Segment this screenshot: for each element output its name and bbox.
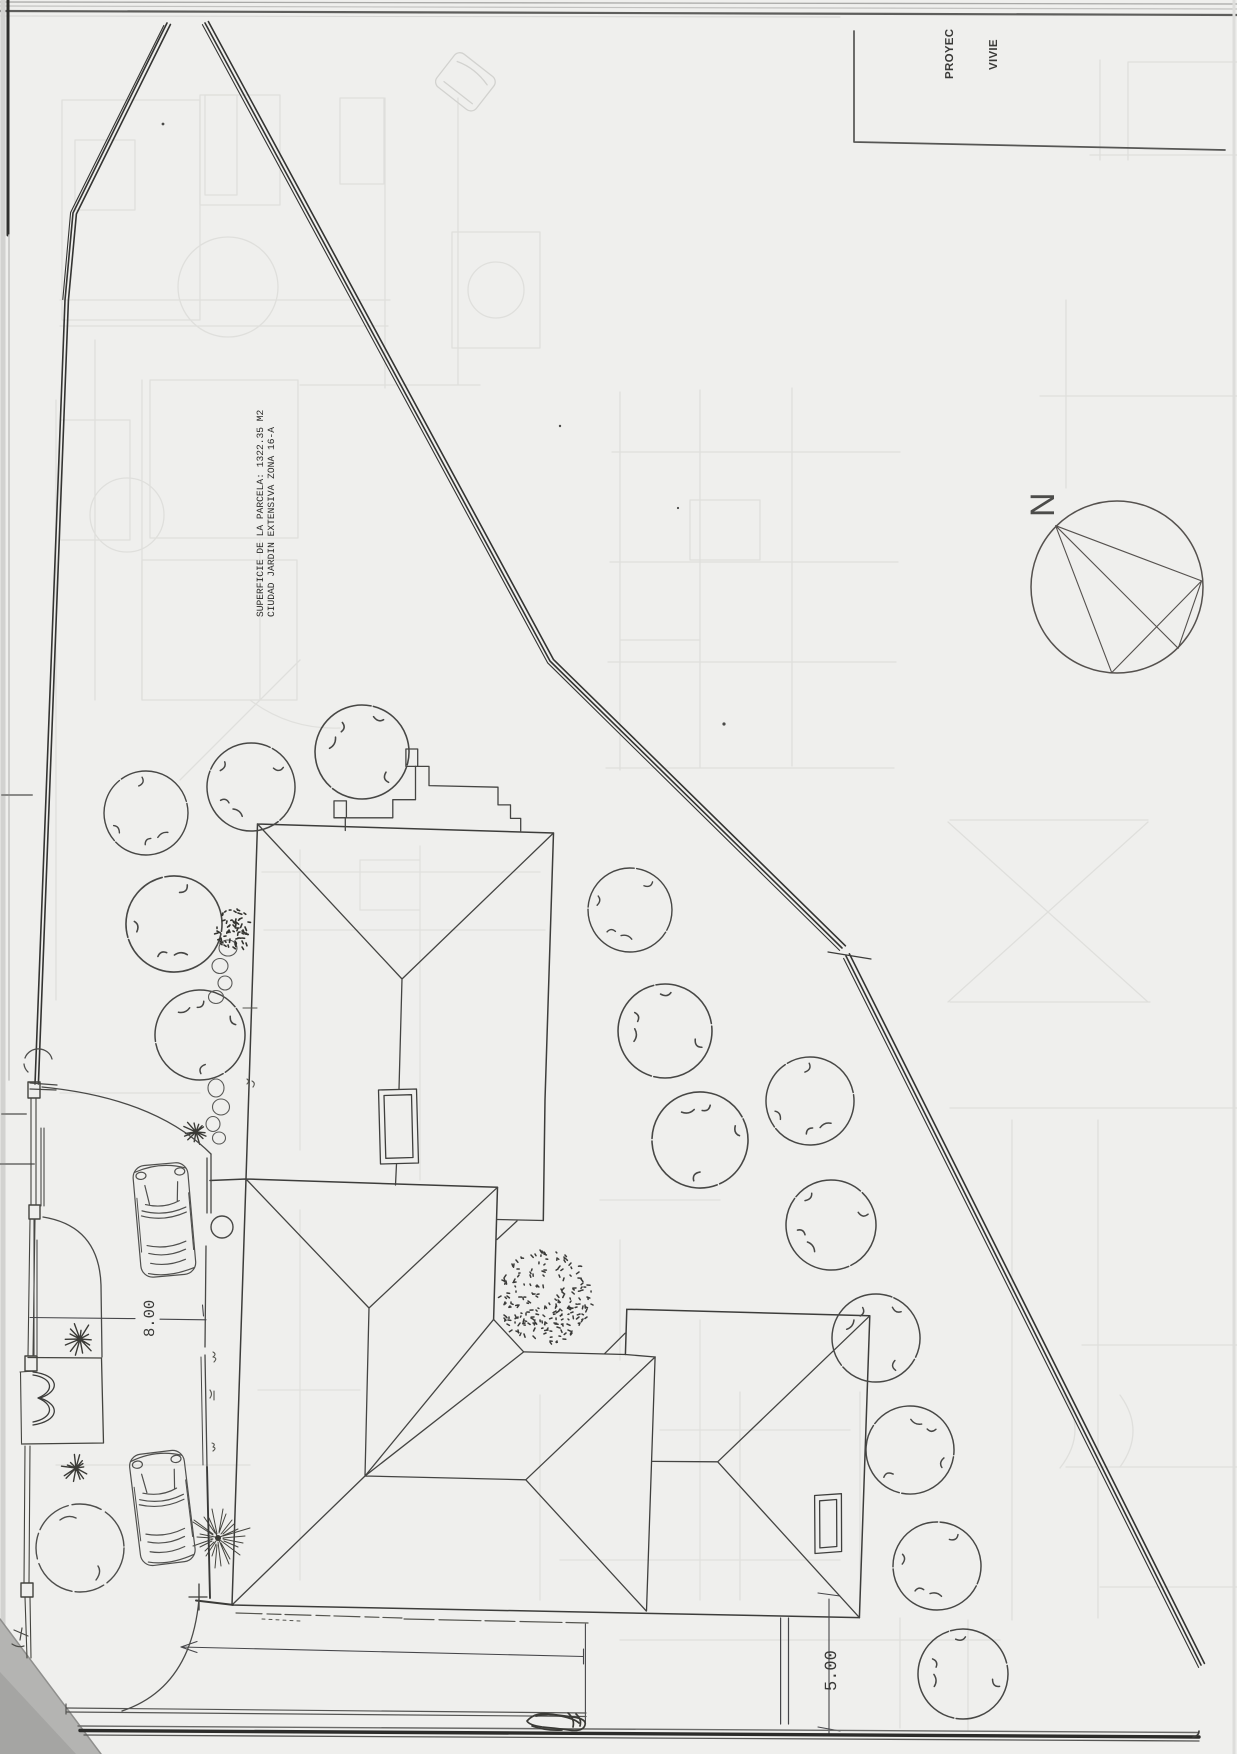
svg-text:VIVIE: VIVIE: [988, 39, 1000, 70]
svg-text:N: N: [1024, 492, 1062, 517]
svg-text:8.00: 8.00: [141, 1300, 159, 1337]
svg-text:PROYEC: PROYEC: [944, 29, 956, 79]
svg-text:5.00: 5.00: [823, 1650, 842, 1691]
svg-text:SUPERFICIE DE LA PARCELA: 1322: SUPERFICIE DE LA PARCELA: 1322.35 M2: [255, 409, 266, 617]
svg-text:CIUDAD JARDIN EXTENSIVA ZONA 1: CIUDAD JARDIN EXTENSIVA ZONA 16-A: [266, 427, 277, 617]
